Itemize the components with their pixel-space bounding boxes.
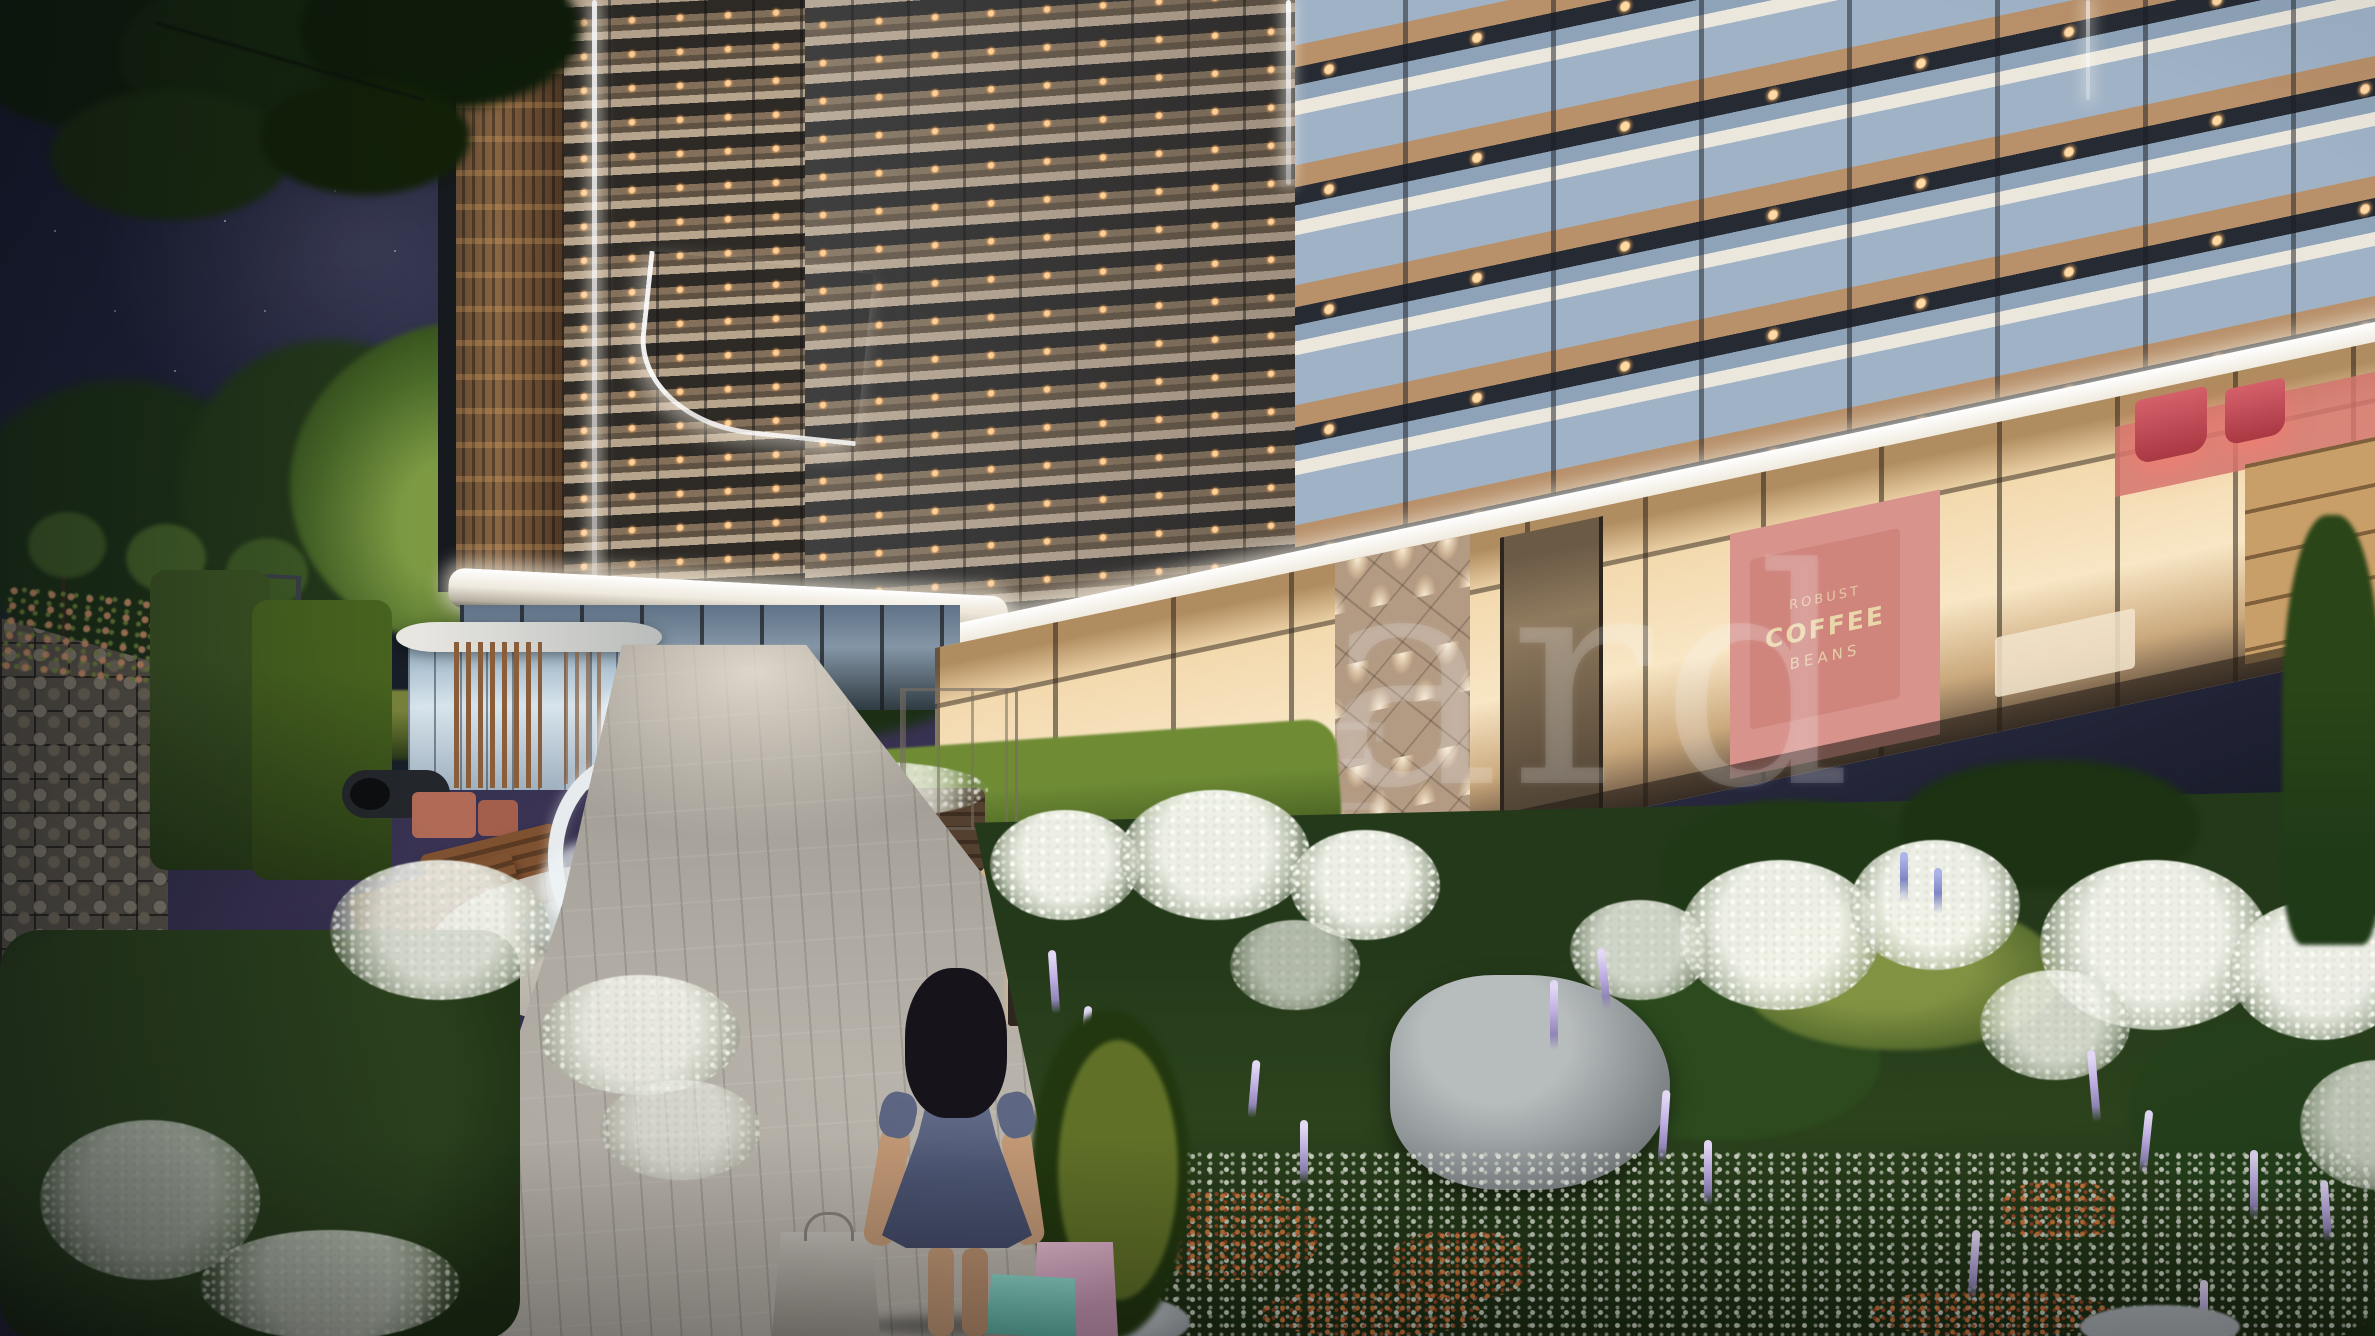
lavender-spike	[1704, 1140, 1712, 1206]
balcony-light-flare	[2142, 16, 2214, 88]
sedum-patch	[2000, 1180, 2120, 1240]
hydrangea-cluster	[990, 810, 1140, 920]
sedum-patch	[1390, 1230, 1530, 1300]
street-tree	[28, 512, 106, 578]
garden-light-flare	[2204, 944, 2262, 1002]
hydrangea-cluster	[1120, 790, 1310, 920]
wood-slat-screen	[454, 642, 542, 788]
hydrangea-cluster	[1570, 900, 1710, 1000]
hydrangea-cluster	[540, 975, 740, 1095]
lavender-spike	[1900, 852, 1908, 902]
hydrangea-cluster	[1680, 860, 1880, 1010]
right-cypress	[2282, 515, 2375, 945]
girl-sleeve	[994, 1089, 1039, 1141]
garden-light-flare	[2292, 1160, 2344, 1212]
sedum-patch	[1870, 1290, 2110, 1336]
hydrangea-cluster	[330, 860, 550, 1000]
hedge-column	[252, 600, 392, 880]
girl-leg-left	[928, 1246, 954, 1336]
girl-leg-right	[962, 1248, 988, 1336]
hydrangea-cluster	[600, 1080, 760, 1180]
render-scene: ROBUST COFFEE BEANS ard E	[0, 0, 2375, 1336]
garden-light-flare	[1318, 1264, 1368, 1314]
garden-light-flare	[1210, 974, 1268, 1032]
garden-light-flare	[1998, 1030, 2062, 1094]
girl-hair	[905, 968, 1007, 1118]
foliage-overhang	[260, 80, 470, 195]
terracotta-planter	[478, 800, 518, 836]
foliage-overhang	[50, 90, 290, 220]
terracotta-planter	[412, 792, 476, 838]
garden-light-flare	[1566, 1172, 1620, 1226]
girl	[850, 960, 1080, 1336]
balcony-light-flare	[1486, 300, 1572, 386]
led-strip-vertical	[1286, 0, 1291, 185]
lavender-spike	[2250, 1150, 2258, 1220]
shopping-bag-grey	[772, 1232, 880, 1336]
led-strip-vertical	[592, 0, 597, 585]
balcony-light-flare	[1478, 52, 1570, 144]
lavender-spike	[1934, 868, 1942, 914]
led-strip-vertical	[2086, 0, 2090, 100]
shopping-bag-teal	[984, 1274, 1079, 1336]
lavender-spike	[1550, 980, 1558, 1050]
lavender-spike	[1300, 1120, 1308, 1184]
tunnel-opening	[350, 778, 390, 810]
hydrangea-cluster	[200, 1230, 460, 1336]
